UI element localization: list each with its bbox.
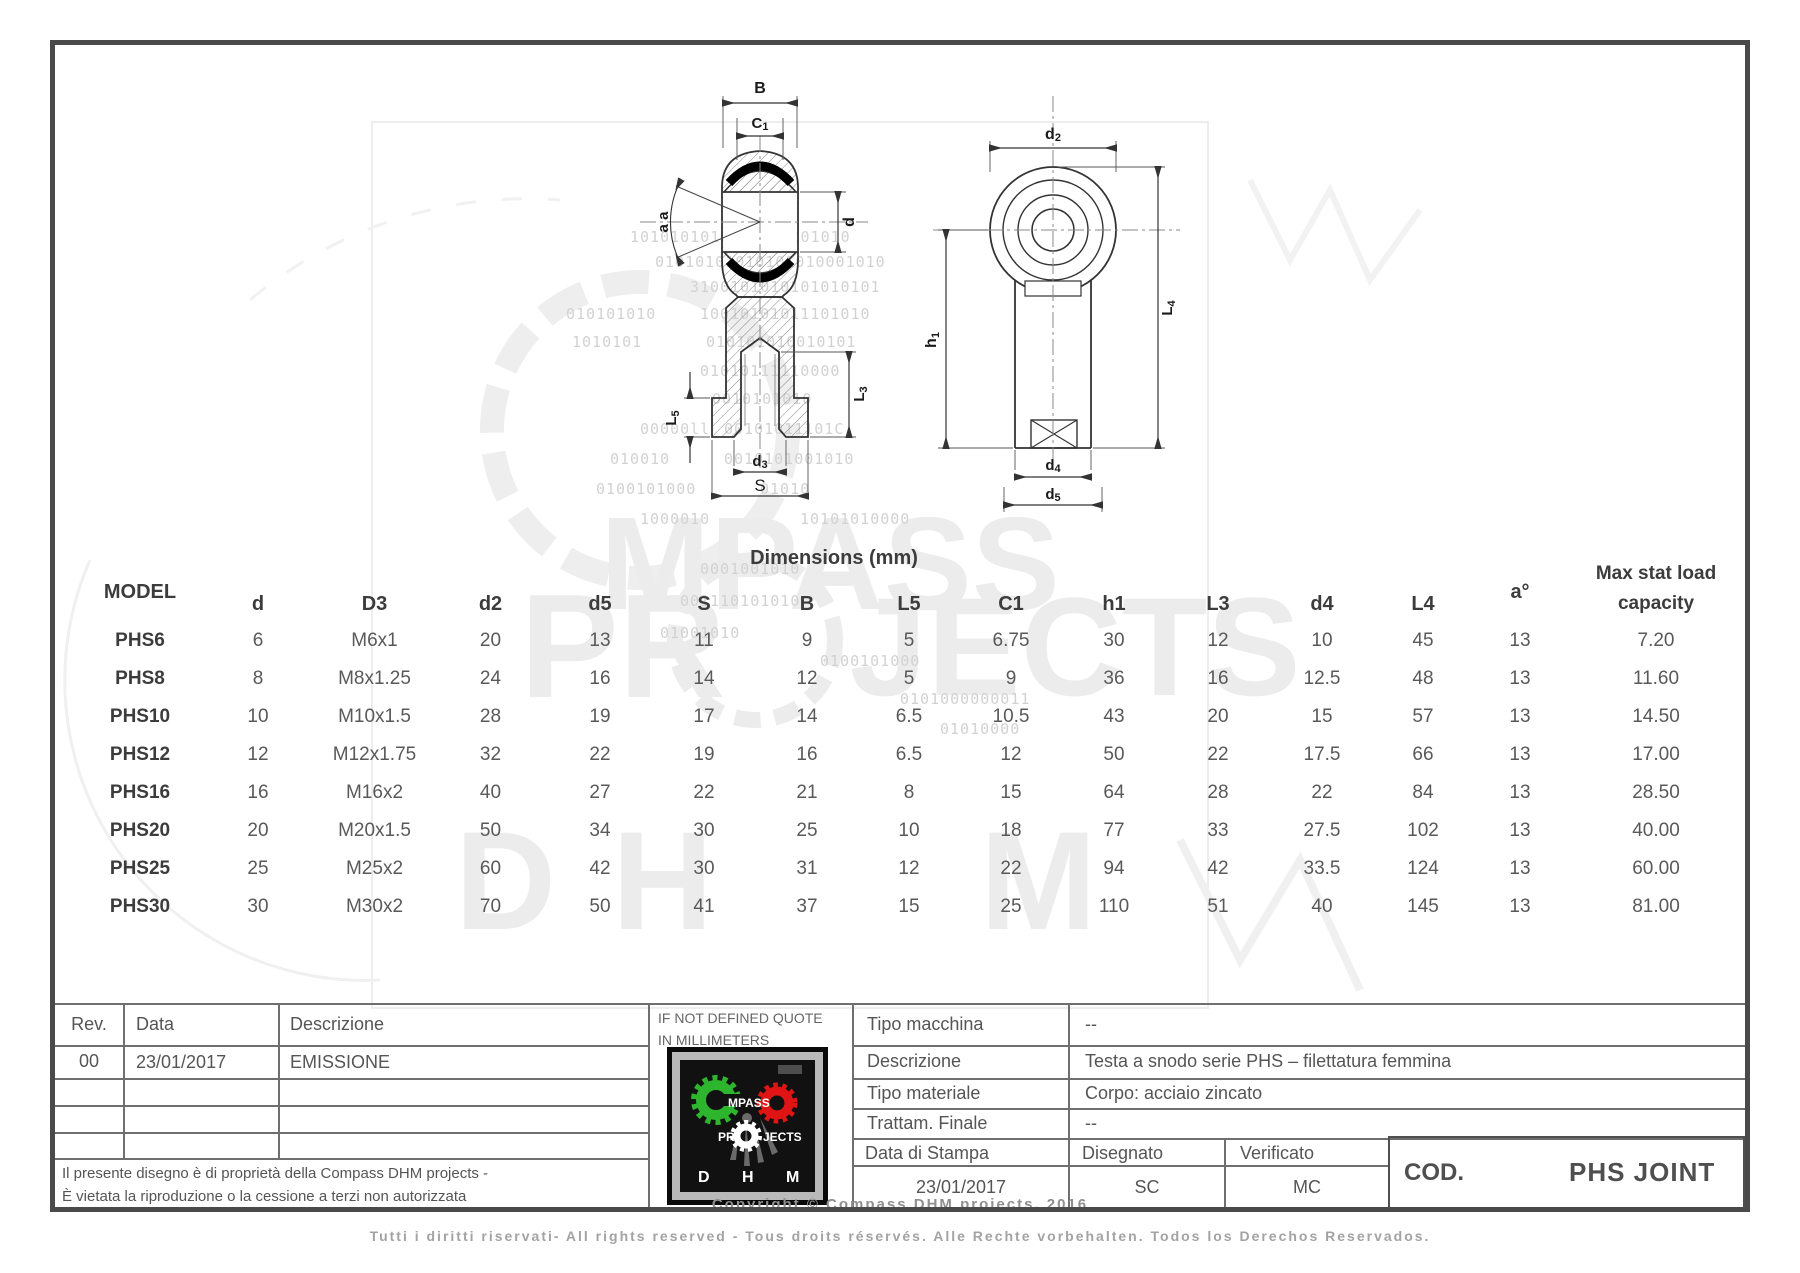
table-row-model: PHS20: [80, 812, 200, 850]
table-cell: 12: [1166, 622, 1270, 660]
table-cell: 16: [200, 774, 316, 812]
table-cell: 102: [1374, 812, 1472, 850]
table-cell: 24: [433, 660, 548, 698]
table-cell: 13: [1472, 698, 1568, 736]
dim-label-d3: d3: [752, 453, 767, 471]
table-cell: M12x1.75: [316, 736, 433, 774]
table-cell: 13: [1472, 660, 1568, 698]
table-row-model: PHS16: [80, 774, 200, 812]
descrizione-header: Descrizione: [290, 1014, 384, 1035]
table-cell: 19: [548, 698, 652, 736]
table-cell: 22: [960, 850, 1062, 888]
field-row: Tipo macchina--: [854, 1003, 1745, 1045]
table-cell: 45: [1374, 622, 1472, 660]
table-cell: M6x1: [316, 622, 433, 660]
table-cell: 13: [1472, 774, 1568, 812]
table-cell: 20: [200, 812, 316, 850]
datasheet-page: MPASS PR JECTS D H M 1010101010101010101…: [0, 0, 1800, 1273]
table-cell: 40: [433, 774, 548, 812]
right-view-drawing: d2 h1 L4 d4 d5: [925, 90, 1265, 520]
watermark-binary: 1000010: [640, 510, 710, 528]
table-cell: 30: [1062, 622, 1166, 660]
dim-label-d4: d4: [1045, 457, 1061, 475]
table-cell: 17: [652, 698, 756, 736]
table-cell: M8x1.25: [316, 660, 433, 698]
table-cell: 43: [1062, 698, 1166, 736]
table-cell: 13: [548, 622, 652, 660]
field-value: Corpo: acciaio zincato: [1071, 1078, 1262, 1108]
table-cell: 28.50: [1568, 774, 1744, 812]
table-cell: 14.50: [1568, 698, 1744, 736]
table-cell: 13: [1472, 812, 1568, 850]
logo-art: MPASS PR JECTS D H M: [680, 1060, 815, 1189]
table-cell: 15: [1270, 698, 1374, 736]
table-cell: 17.5: [1270, 736, 1374, 774]
logo-word2a: PR: [718, 1130, 735, 1144]
field-value: --: [1071, 1003, 1097, 1045]
table-cell: M10x1.5: [316, 698, 433, 736]
table-cell: 30: [200, 888, 316, 926]
field-label: Tipo materiale: [854, 1078, 1071, 1108]
dim-label-L4: L4: [1159, 299, 1178, 315]
left-view-drawing: B C1 a a d L3 L5 d3 S: [560, 55, 900, 510]
table-cell: 22: [652, 774, 756, 812]
table-cell: 25: [756, 812, 858, 850]
column-header: d4: [1270, 545, 1374, 622]
table-cell: 33: [1166, 812, 1270, 850]
table-cell: 110: [1062, 888, 1166, 926]
table-title: Dimensions (mm): [674, 547, 994, 570]
field-row: Trattam. Finale--: [854, 1108, 1745, 1138]
column-header: L3: [1166, 545, 1270, 622]
frame-bottom-border: [55, 1207, 1745, 1212]
table-cell: 16: [548, 660, 652, 698]
table-cell: 32: [433, 736, 548, 774]
rev-descrizione: EMISSIONE: [290, 1052, 390, 1073]
field-row: Tipo materialeCorpo: acciaio zincato: [854, 1078, 1745, 1108]
table-cell: 60: [433, 850, 548, 888]
table-cell: 33.5: [1270, 850, 1374, 888]
table-cell: 27.5: [1270, 812, 1374, 850]
table-cell: 14: [652, 660, 756, 698]
rev-header: Rev.: [55, 1003, 123, 1045]
table-cell: 12: [858, 850, 960, 888]
column-header: d: [200, 545, 316, 622]
logo-letter-h: H: [742, 1169, 754, 1186]
dim-label-aa: a a: [655, 211, 672, 233]
table-cell: 77: [1062, 812, 1166, 850]
cod-value: PHS JOINT: [1569, 1157, 1715, 1188]
table-cell: 48: [1374, 660, 1472, 698]
table-cell: 11.60: [1568, 660, 1744, 698]
dim-label-h1: h1: [925, 332, 942, 348]
table-cell: 9: [756, 622, 858, 660]
table-cell: 57: [1374, 698, 1472, 736]
table-cell: 20: [433, 622, 548, 660]
table-cell: 12: [756, 660, 858, 698]
column-header: L4: [1374, 545, 1472, 622]
field-value: Testa a snodo serie PHS – filettatura fe…: [1071, 1045, 1451, 1078]
table-cell: 41: [652, 888, 756, 926]
table-cell: 19: [652, 736, 756, 774]
table-cell: 13: [1472, 622, 1568, 660]
table-cell: 16: [1166, 660, 1270, 698]
table-cell: M30x2: [316, 888, 433, 926]
table-cell: 66: [1374, 736, 1472, 774]
dimensions-table: Dimensions (mm) MODELdD3d2d5SBL5C1h1L3d4…: [80, 545, 1744, 926]
dim-label-d2: d2: [1045, 126, 1061, 144]
table-cell: 5: [858, 622, 960, 660]
watermark-binary: 10101010000: [800, 510, 910, 528]
table-cell: 10: [200, 698, 316, 736]
dim-label-d5: d5: [1045, 486, 1060, 504]
table-cell: 70: [433, 888, 548, 926]
column-header: a°: [1472, 545, 1568, 622]
table-cell: 6.75: [960, 622, 1062, 660]
table-cell: 6: [200, 622, 316, 660]
table-row-model: PHS6: [80, 622, 200, 660]
table-row-model: PHS25: [80, 850, 200, 888]
field-label: Tipo macchina: [854, 1003, 1071, 1045]
table-cell: 36: [1062, 660, 1166, 698]
field-label: Trattam. Finale: [854, 1108, 1071, 1138]
disegnato-label: Disegnato: [1082, 1143, 1163, 1164]
rev-value: 00: [55, 1045, 123, 1078]
table-cell: 22: [1270, 774, 1374, 812]
table-cell: 42: [1166, 850, 1270, 888]
verificato-label: Verificato: [1240, 1143, 1314, 1164]
column-header: D3: [316, 545, 433, 622]
table-cell: 10.5: [960, 698, 1062, 736]
dim-label-L5: L5: [663, 410, 682, 425]
table-cell: 14: [756, 698, 858, 736]
table-cell: 28: [1166, 774, 1270, 812]
table-cell: 22: [1166, 736, 1270, 774]
table-cell: 16: [756, 736, 858, 774]
table-cell: 17.00: [1568, 736, 1744, 774]
table-cell: 5: [858, 660, 960, 698]
table-cell: 13: [1472, 850, 1568, 888]
dim-label-S: S: [754, 476, 765, 495]
table-cell: 8: [858, 774, 960, 812]
dim-label-d: d: [841, 217, 858, 227]
table-cell: 145: [1374, 888, 1472, 926]
logo-mat: MPASS PR JECTS D H M: [672, 1052, 823, 1200]
table-cell: 51: [1166, 888, 1270, 926]
compass-dhm-logo: MPASS PR JECTS D H M: [667, 1047, 828, 1205]
table-cell: 13: [1472, 736, 1568, 774]
table-cell: 7.20: [1568, 622, 1744, 660]
table-cell: 22: [548, 736, 652, 774]
table-cell: 12: [200, 736, 316, 774]
table-cell: M25x2: [316, 850, 433, 888]
table-cell: 64: [1062, 774, 1166, 812]
table-cell: 40: [1270, 888, 1374, 926]
logo-letter-d: D: [698, 1169, 710, 1186]
table-cell: 25: [960, 888, 1062, 926]
table-cell: 31: [756, 850, 858, 888]
table-row-model: PHS8: [80, 660, 200, 698]
table-cell: 18: [960, 812, 1062, 850]
logo-letter-m: M: [786, 1169, 799, 1186]
table-cell: 37: [756, 888, 858, 926]
table-cell: 21: [756, 774, 858, 812]
dim-label-L3: L3: [851, 386, 870, 401]
table-cell: 60.00: [1568, 850, 1744, 888]
table-cell: 50: [1062, 736, 1166, 774]
table-cell: 84: [1374, 774, 1472, 812]
thread-symbol-box: [1031, 420, 1077, 448]
field-row: DescrizioneTesta a snodo serie PHS – fil…: [854, 1045, 1745, 1078]
logo-word1: MPASS: [728, 1096, 770, 1110]
table-cell: 28: [433, 698, 548, 736]
column-header: Max stat load capacity: [1568, 545, 1744, 622]
column-header: h1: [1062, 545, 1166, 622]
table-row-model: PHS12: [80, 736, 200, 774]
logo-notch: [778, 1065, 802, 1074]
table-row-model: PHS30: [80, 888, 200, 926]
table-row-model: PHS10: [80, 698, 200, 736]
table-cell: 6.5: [858, 736, 960, 774]
table-cell: 50: [433, 812, 548, 850]
table-cell: M20x1.5: [316, 812, 433, 850]
table-cell: 25: [200, 850, 316, 888]
table-cell: 11: [652, 622, 756, 660]
table-cell: 9: [960, 660, 1062, 698]
table-cell: 8: [200, 660, 316, 698]
table-cell: 12: [960, 736, 1062, 774]
table-cell: 20: [1166, 698, 1270, 736]
table-cell: 124: [1374, 850, 1472, 888]
table-cell: 13: [1472, 888, 1568, 926]
table-cell: 94: [1062, 850, 1166, 888]
table-cell: 30: [652, 812, 756, 850]
table-cell: 81.00: [1568, 888, 1744, 926]
table-cell: 10: [1270, 622, 1374, 660]
table-cell: 34: [548, 812, 652, 850]
property-note-line1: Il presente disegno è di proprietà della…: [62, 1163, 632, 1186]
cod-label: COD.: [1404, 1159, 1464, 1187]
units-note-line1: IF NOT DEFINED QUOTE: [658, 1008, 848, 1030]
table-cell: 15: [960, 774, 1062, 812]
rights-footer: Tutti i diritti riservati- All rights re…: [0, 1228, 1800, 1244]
column-header: d2: [433, 545, 548, 622]
table-cell: 12.5: [1270, 660, 1374, 698]
table-cell: 30: [652, 850, 756, 888]
stampa-label: Data di Stampa: [865, 1143, 989, 1164]
table-cell: 6.5: [858, 698, 960, 736]
table-cell: M16x2: [316, 774, 433, 812]
table-cell: 50: [548, 888, 652, 926]
table-cell: 10: [858, 812, 960, 850]
rev-date: 23/01/2017: [136, 1052, 226, 1073]
table-cell: 15: [858, 888, 960, 926]
table-cell: 42: [548, 850, 652, 888]
units-note: IF NOT DEFINED QUOTE IN MILLIMETERS: [658, 1008, 848, 1051]
field-label: Descrizione: [854, 1045, 1071, 1078]
table-cell: 27: [548, 774, 652, 812]
column-header: d5: [548, 545, 652, 622]
logo-word2b: JECTS: [763, 1130, 802, 1144]
data-header: Data: [136, 1014, 174, 1035]
table-cell: 40.00: [1568, 812, 1744, 850]
dim-label-C1: C1: [752, 115, 769, 133]
field-value: --: [1071, 1108, 1097, 1138]
column-header-model: MODEL: [80, 545, 200, 622]
logo-panel: MPASS PR JECTS D H M: [680, 1060, 815, 1192]
dim-label-B: B: [754, 80, 766, 97]
